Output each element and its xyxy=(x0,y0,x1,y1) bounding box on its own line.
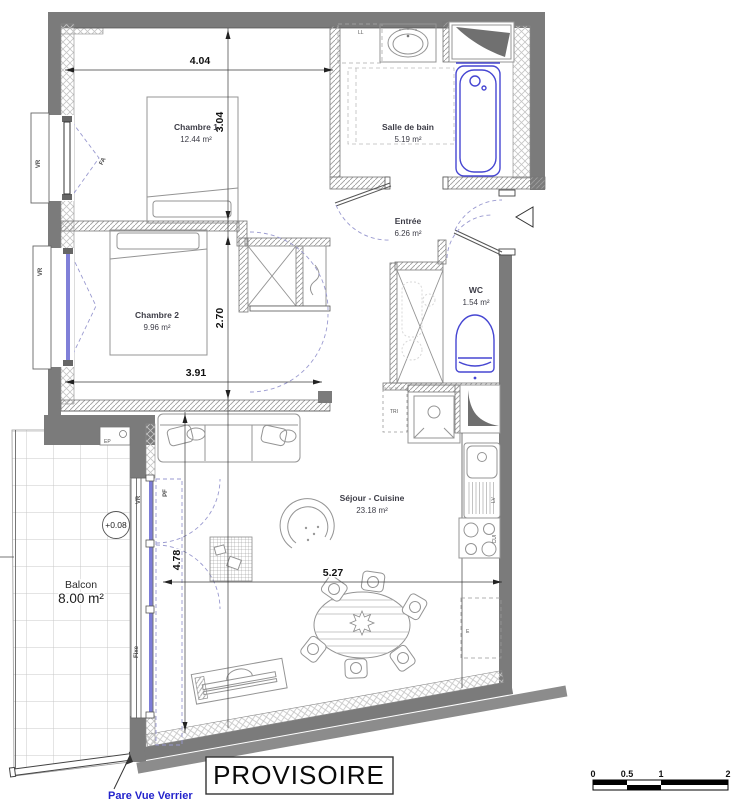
room-label-sejour: Séjour - Cuisine xyxy=(340,493,405,503)
room-area-balcon: 8.00 m² xyxy=(58,591,104,606)
bathtub xyxy=(348,63,500,176)
tv-unit xyxy=(191,658,287,704)
stamp-text: PROVISOIRE xyxy=(213,760,385,790)
door-chambre2-swing xyxy=(250,314,328,392)
door-salle-de-bain xyxy=(335,183,391,240)
balcony-door-swing xyxy=(156,479,220,745)
scale-tick-05: 0.5 xyxy=(621,769,634,779)
room-label-entree: Entrée xyxy=(395,216,422,226)
entrance-arrow-icon xyxy=(516,207,533,227)
window2-opening xyxy=(72,256,96,356)
ep-label: EP xyxy=(104,439,111,445)
dim-527: 5.27 xyxy=(323,567,344,579)
scale-bar: 0 0.5 1 2 xyxy=(590,769,730,790)
floor-plan-page: +0.08 Balcon 8.00 m² EP xyxy=(0,0,747,800)
washing-machine-label: LL xyxy=(358,30,364,36)
room-area-chambre1: 12.44 m² xyxy=(180,135,212,144)
lv-label: LV xyxy=(491,496,497,502)
room-area-wc: 1.54 m² xyxy=(462,298,489,307)
scale-tick-0: 0 xyxy=(590,769,595,779)
room-area-salle-de-bain: 5.19 m² xyxy=(394,135,421,144)
dining-table xyxy=(314,592,410,658)
level-marker: +0.08 xyxy=(105,520,127,530)
provisoire-stamp: PROVISOIRE xyxy=(206,757,393,794)
dim-404: 4.04 xyxy=(190,55,211,67)
pare-vue-label: Pare Vue Verrier xyxy=(108,790,193,800)
dim-478: 4.78 xyxy=(171,550,183,571)
window2-vr-label: VR xyxy=(38,267,44,276)
e-label: E xyxy=(466,629,470,635)
cui-label: CUI xyxy=(492,535,498,544)
kitchen-sink: LV xyxy=(464,443,500,518)
window1-vr-label: VR xyxy=(36,159,42,168)
ep-downpipe-icon xyxy=(120,431,127,438)
sofa xyxy=(158,414,300,462)
room-area-sejour: 23.18 m² xyxy=(356,506,388,515)
room-label-chambre1: Chambre 1 xyxy=(174,122,218,132)
kitchen-corner-unit xyxy=(455,385,500,433)
toilet xyxy=(456,315,494,379)
bed-chambre2 xyxy=(110,230,207,355)
door-entrance xyxy=(454,200,502,255)
floor-plan-drawing: +0.08 Balcon 8.00 m² EP xyxy=(0,0,747,800)
kitchen-corner-sink xyxy=(408,385,460,443)
dim-270: 2.70 xyxy=(214,308,226,329)
tri-label: TRI xyxy=(390,409,398,415)
window1-opening xyxy=(72,122,99,196)
balcony: +0.08 Balcon 8.00 m² xyxy=(0,430,136,777)
room-label-wc: WC xyxy=(469,285,483,295)
room-label-balcon: Balcon xyxy=(65,579,97,591)
window1-fa-label: FA xyxy=(99,156,108,166)
room-area-chambre2: 9.96 m² xyxy=(143,323,170,332)
room-label-chambre2: Chambre 2 xyxy=(135,310,179,320)
window-chambre2: VR xyxy=(33,246,74,369)
room-label-salle-de-bain: Salle de bain xyxy=(382,122,434,132)
balcony-window-door: VR Fixe PF xyxy=(131,475,169,718)
window3-vr-label: VR xyxy=(136,495,142,504)
armchair xyxy=(280,499,334,548)
scale-tick-1: 1 xyxy=(658,769,663,779)
window-chambre1: VR FA xyxy=(31,113,108,203)
window3-fixe-label: Fixe xyxy=(134,645,140,658)
washbasin xyxy=(380,24,436,62)
dim-391: 3.91 xyxy=(186,367,207,379)
partition-walls xyxy=(61,26,545,411)
scale-tick-2: 2 xyxy=(725,769,730,779)
room-area-entree: 6.26 m² xyxy=(394,229,421,238)
window3-pf-label: PF xyxy=(163,489,169,497)
stove: CUI xyxy=(459,518,500,558)
shower-unit xyxy=(443,22,514,62)
